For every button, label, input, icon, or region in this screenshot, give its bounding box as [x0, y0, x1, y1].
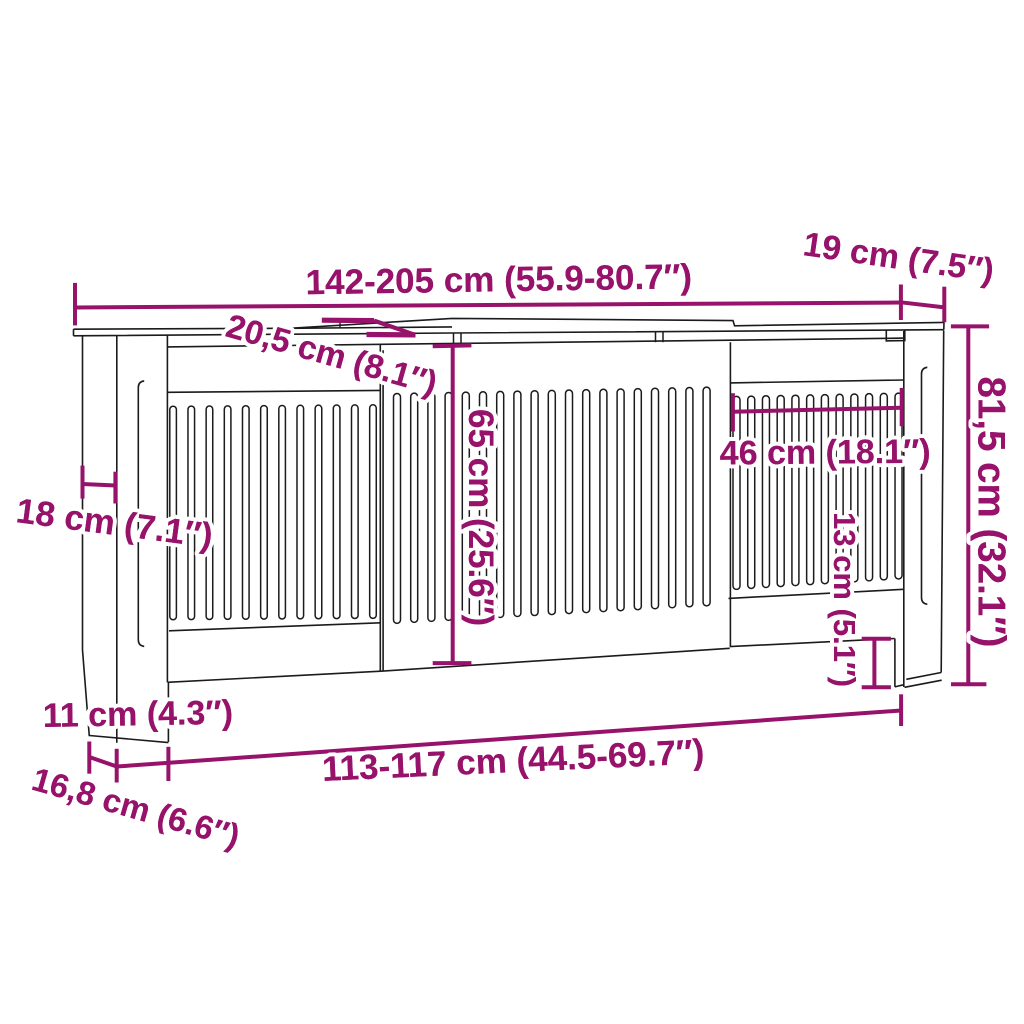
svg-text:13 cm (5.1″): 13 cm (5.1″)	[827, 512, 862, 687]
svg-text:46 cm (18.1″): 46 cm (18.1″)	[720, 433, 931, 473]
svg-text:81,5 cm (32.1″): 81,5 cm (32.1″)	[970, 377, 1013, 648]
svg-text:142-205 cm (55.9-80.7″): 142-205 cm (55.9-80.7″)	[305, 257, 692, 302]
svg-text:11 cm (4.3″): 11 cm (4.3″)	[42, 694, 233, 735]
svg-text:65 cm (25.6″): 65 cm (25.6″)	[461, 409, 500, 626]
